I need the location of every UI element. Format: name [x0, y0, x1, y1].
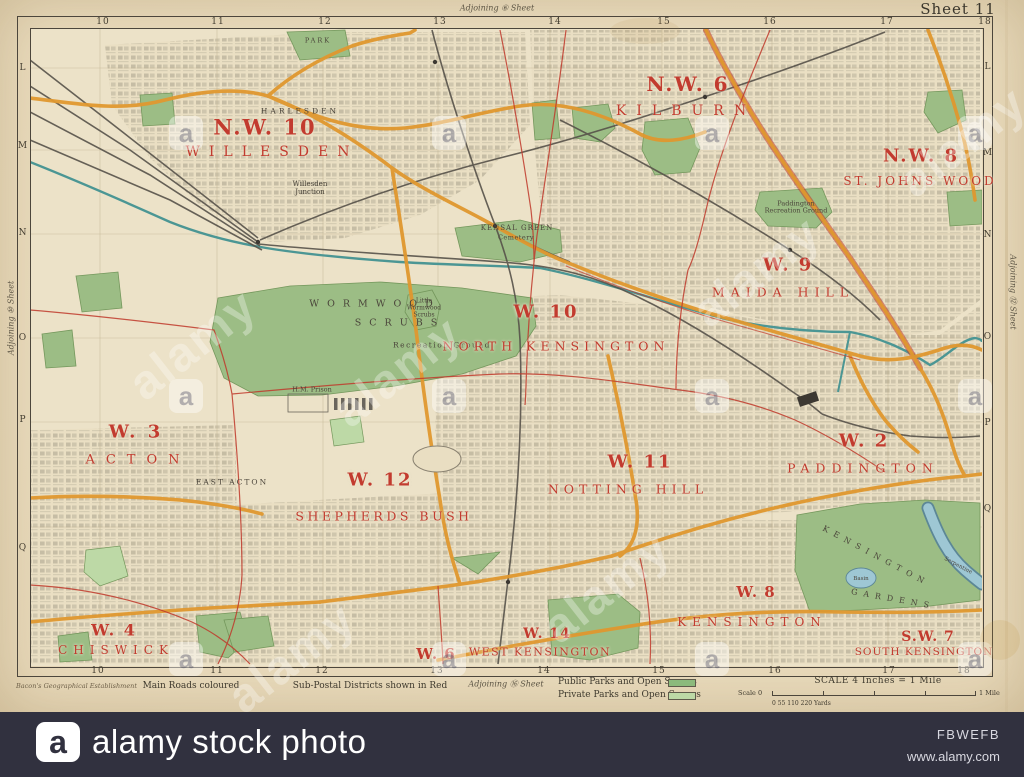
alamy-watermark-logo-icon: a	[958, 379, 992, 413]
alamy-watermark-logo-icon: a	[432, 116, 466, 150]
adjoining-right-label: Adjoining ⑫ Sheet	[1008, 254, 1019, 329]
alamy-logo-letter: a	[179, 644, 193, 675]
scale-title: SCALE 4 Inches = 1 Mile	[814, 676, 941, 686]
grid-number: 16	[763, 17, 776, 27]
alamy-logo-letter: a	[705, 644, 719, 675]
alamy-logo-letter: a	[442, 118, 456, 149]
alamy-watermark-logo-icon: a	[169, 642, 203, 676]
place-label: Willesden Junction	[281, 180, 339, 196]
place-label: Cemetery	[498, 234, 534, 241]
alamy-watermarked-photo: Sheet 11 Adjoining ⑥ Sheet Adjoining ⑯ S…	[0, 0, 1024, 777]
place-label: KENSAL GREEN	[481, 224, 553, 232]
district-name: NOTTING HILL	[548, 482, 708, 497]
grid-letter: N	[19, 228, 28, 238]
grid-number: 16	[768, 666, 781, 676]
alamy-watermark-logo-icon: a	[695, 642, 729, 676]
legend-sub-postal: Sub-Postal Districts shown in Red	[293, 681, 447, 691]
alamy-logo-letter: a	[442, 381, 456, 412]
alamy-website: www.alamy.com	[907, 749, 1000, 764]
private-parks-swatch	[668, 692, 696, 700]
district-name: SHEPHERDS BUSH	[295, 509, 472, 524]
grid-number: 10	[96, 17, 109, 27]
district-name: ACTON	[85, 453, 190, 468]
scale-start-label: Scale 0	[738, 689, 762, 697]
alamy-watermark-logo-icon: a	[432, 642, 466, 676]
grid-letter: O	[19, 333, 27, 343]
grid-letter: O	[984, 332, 992, 342]
alamy-logo-letter: a	[705, 381, 719, 412]
district-code: W. 12	[348, 470, 413, 491]
publisher-credit: Bacon's Geographical Establishment	[16, 682, 137, 690]
alamy-logo-letter: a	[968, 644, 982, 675]
grid-number: 11	[210, 666, 223, 676]
grid-letter: Q	[19, 543, 27, 553]
place-label: EAST ACTON	[196, 479, 268, 488]
grid-letter: N	[984, 230, 993, 240]
scale-tick	[925, 691, 926, 696]
grid-letter: L	[985, 62, 992, 72]
alamy-logo-letter: a	[49, 726, 67, 758]
grid-number: 15	[652, 666, 665, 676]
alamy-footer-bar: a alamy stock photo FBWEFB www.alamy.com	[0, 712, 1024, 777]
district-name: WEST KENSINGTON	[469, 646, 611, 659]
district-name: KENSINGTON	[677, 615, 827, 629]
alamy-watermark-logo-icon: a	[169, 116, 203, 150]
image-id: FBWEFB	[937, 727, 1000, 742]
place-label: Basin	[853, 576, 868, 582]
alamy-logo-letter: a	[705, 118, 719, 149]
paper-stain	[980, 620, 1020, 660]
scale-tick	[823, 691, 824, 696]
district-code: N.W. 10	[213, 115, 316, 140]
grid-number: 18	[978, 17, 991, 27]
alamy-watermark-logo-icon: a	[695, 116, 729, 150]
scale-tick	[772, 691, 773, 696]
alamy-watermark-logo-icon: a	[432, 379, 466, 413]
alamy-logo-letter: a	[968, 381, 982, 412]
grid-number: 13	[433, 17, 446, 27]
district-code: W. 10	[514, 302, 579, 323]
district-name: PADDINGTON	[787, 461, 939, 476]
alamy-brand-text: alamy stock photo	[92, 723, 366, 761]
scale-tick	[975, 691, 976, 696]
adjoining-top-label: Adjoining ⑥ Sheet	[460, 4, 534, 13]
adjoining-bottom-label: Adjoining ⑯ Sheet	[468, 679, 543, 690]
grid-letter: Q	[984, 504, 992, 514]
district-name: WILLESDEN	[185, 144, 358, 160]
paper-stain	[610, 18, 680, 44]
district-code: W. 8	[736, 583, 775, 601]
grid-number: 10	[91, 666, 104, 676]
district-code: W. 4	[91, 621, 137, 640]
grid-letter: P	[19, 415, 26, 425]
public-parks-swatch	[668, 679, 696, 687]
grid-letter: P	[984, 418, 991, 428]
district-code: S.W. 7	[901, 629, 955, 645]
scale-tick	[874, 691, 875, 696]
district-code: W. 11	[608, 452, 673, 473]
grid-number: 17	[882, 666, 895, 676]
grid-number: 14	[548, 17, 561, 27]
paper-crease	[1005, 0, 1008, 712]
map-paper: Sheet 11 Adjoining ⑥ Sheet Adjoining ⑯ S…	[0, 0, 1024, 712]
grid-letter: L	[20, 63, 27, 73]
district-name: KILBURN	[616, 103, 756, 119]
grid-number: 17	[880, 17, 893, 27]
district-code: W. 3	[109, 422, 163, 443]
scale-yards-label: 0 55 110 220 Yards	[772, 700, 831, 707]
grid-letter: M	[18, 141, 28, 151]
grid-number: 12	[318, 17, 331, 27]
place-label: PARK	[305, 37, 331, 44]
district-name: CHISWICK	[58, 643, 174, 657]
district-name: NORTH KENSINGTON	[443, 339, 670, 354]
alamy-watermark-logo-icon: a	[695, 379, 729, 413]
scale-end-label: 1 Mile	[979, 689, 1000, 697]
alamy-logo: a	[36, 722, 80, 762]
district-code: W. 2	[839, 431, 889, 452]
grid-number: 11	[211, 17, 224, 27]
alamy-logo-letter: a	[179, 118, 193, 149]
sheet-number-label: Sheet 11	[920, 0, 996, 18]
alamy-logo-letter: a	[442, 644, 456, 675]
adjoining-left-label: Adjoining ⑩ Sheet	[7, 281, 16, 355]
grid-number: 14	[537, 666, 550, 676]
district-code: N.W. 6	[646, 72, 729, 96]
